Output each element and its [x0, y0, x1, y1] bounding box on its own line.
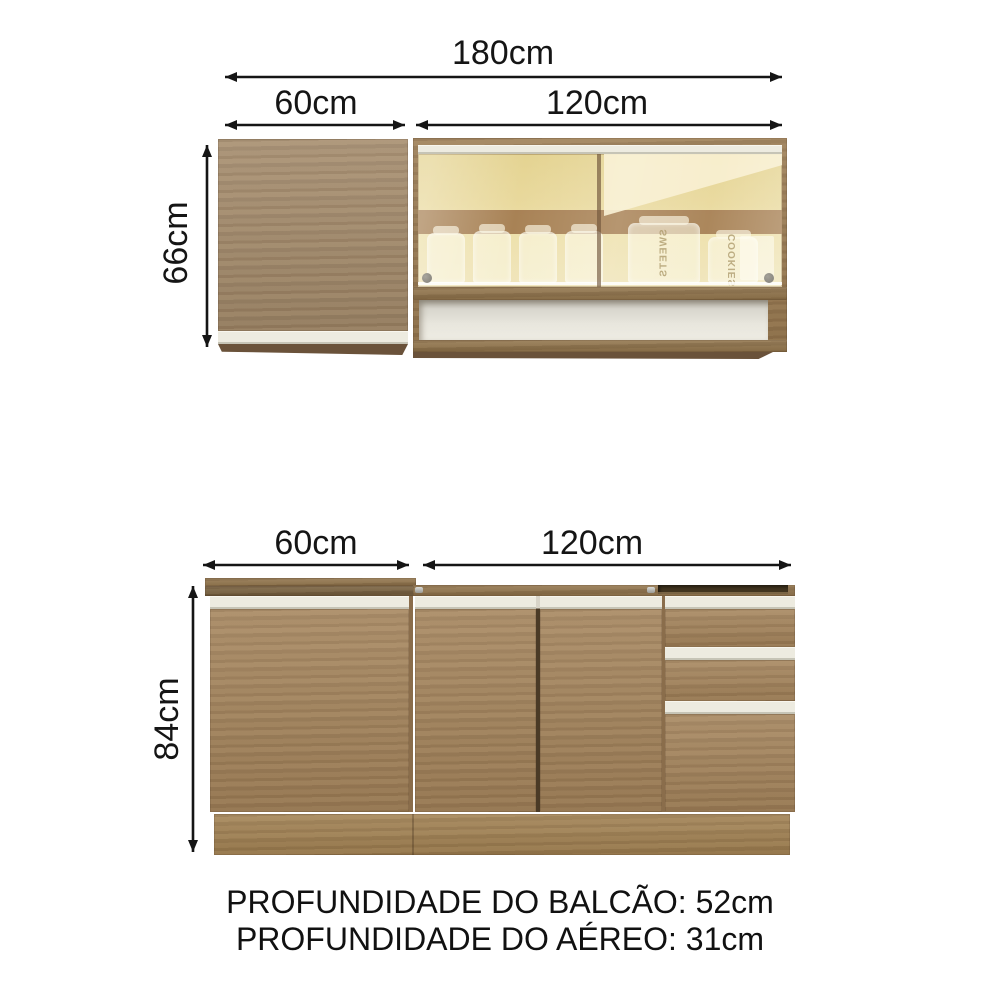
- niche-top-rail: [413, 287, 787, 300]
- middle-door-2-handle: [540, 596, 662, 609]
- jar-small-1: [427, 233, 465, 283]
- upper-left-width-label: 60cm: [274, 86, 357, 120]
- open-niche: [419, 300, 768, 340]
- unit-junction-gap: [409, 596, 413, 812]
- middle-cabinet-door-1: [415, 609, 536, 812]
- left-countertop-edge: [205, 586, 416, 596]
- jar-sweets-label: SWEETS: [658, 229, 669, 277]
- drawer-2-handle: [665, 647, 795, 660]
- jar-small-3: [519, 232, 557, 283]
- drawer-2-front: [665, 660, 795, 701]
- glass-sliding-doors: SWEETS COOKIES: [418, 154, 782, 287]
- niche-bottom-rail: [413, 340, 787, 352]
- aereo-depth-text: PROFUNDIDADE DO AÉREO: 31cm: [0, 921, 1000, 958]
- depth-notes: PROFUNDIDADE DO BALCÃO: 52cm PROFUNDIDAD…: [0, 884, 1000, 958]
- jar-small-2: [473, 231, 511, 283]
- middle-doors-gap: [536, 596, 540, 812]
- jar-sweets: SWEETS: [628, 223, 700, 283]
- top-hinge-right: [647, 587, 655, 593]
- top-hinge-left: [415, 587, 423, 593]
- upper-right-width-label: 120cm: [546, 86, 648, 120]
- drawer-cabinet-door: [665, 714, 795, 812]
- drawer-1-front: [665, 609, 795, 647]
- toe-kick-plinth: [214, 814, 790, 855]
- balcao-depth-text: PROFUNDIDADE DO BALCÃO: 52cm: [0, 884, 1000, 921]
- product-dimension-diagram: 180cm 60cm 120cm 66cm 60cm 120cm 84cm SW…: [0, 0, 1000, 1000]
- lower-left-cabinet-door: [210, 609, 409, 812]
- glass-door-divider: [597, 154, 601, 287]
- sink-recess-opening: [658, 585, 788, 594]
- drawer-1-handle: [665, 596, 795, 609]
- upper-total-width-label: 180cm: [452, 36, 554, 70]
- left-door-handle: [210, 596, 409, 609]
- upper-left-cabinet-bottom-edge: [218, 344, 408, 355]
- left-countertop-surface: [205, 578, 416, 586]
- upper-left-cabinet-door: [218, 139, 408, 331]
- middle-cabinet-door-2: [540, 609, 662, 812]
- jar-cookies-label: COOKIES: [728, 233, 739, 286]
- glass-doors-top-rail: [418, 145, 782, 154]
- drawer-3-handle: [665, 701, 795, 714]
- lower-height-label: 84cm: [150, 677, 184, 760]
- upper-height-label: 66cm: [159, 201, 193, 284]
- toe-kick-seam: [412, 814, 414, 855]
- left-glass-door-knob: [422, 273, 432, 283]
- middle-door-1-handle: [415, 596, 536, 609]
- lower-right-width-label: 120cm: [541, 526, 643, 560]
- upper-right-cabinet-bottom-shadow: [413, 352, 773, 359]
- lower-left-width-label: 60cm: [274, 526, 357, 560]
- glass-ceiling-reflection: [604, 154, 782, 216]
- right-glass-door-knob: [764, 273, 774, 283]
- upper-left-door-handle: [218, 331, 408, 344]
